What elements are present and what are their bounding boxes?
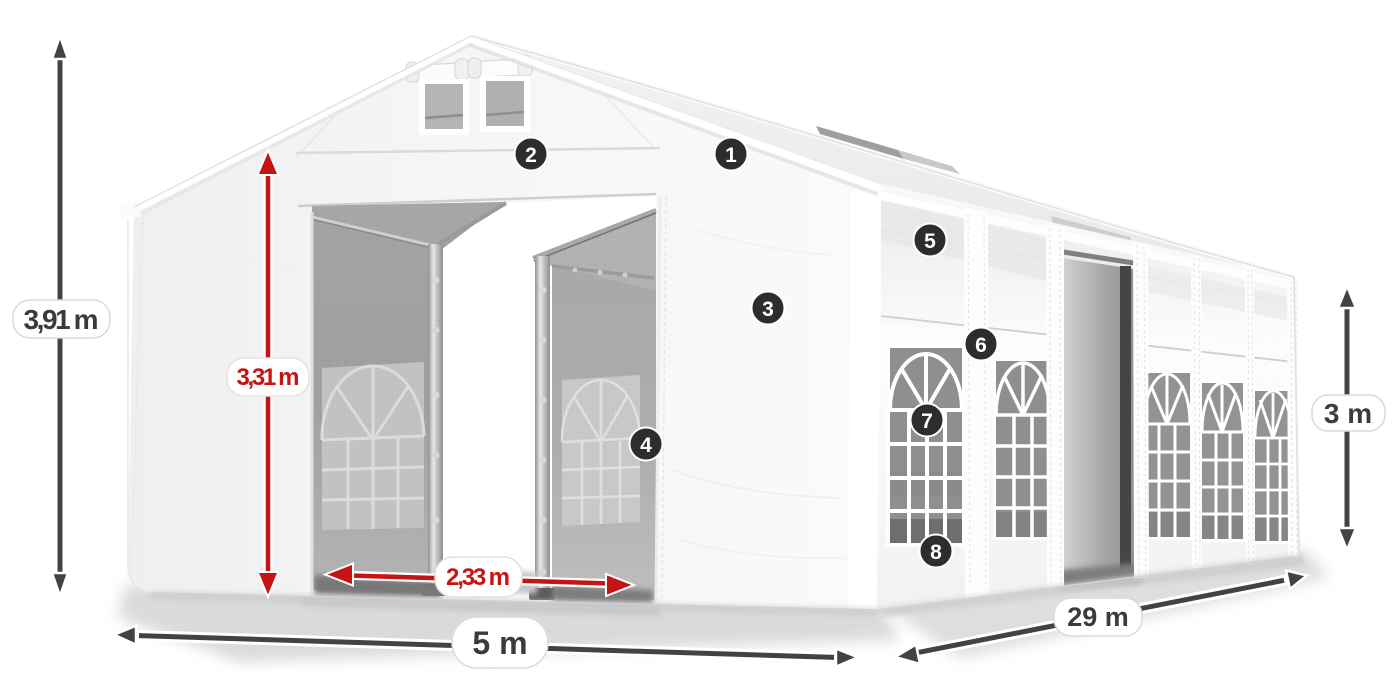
svg-text:29 m: 29 m bbox=[1067, 602, 1129, 632]
svg-text:2: 2 bbox=[525, 144, 537, 167]
svg-text:8: 8 bbox=[930, 541, 942, 564]
svg-text:5: 5 bbox=[924, 230, 936, 253]
svg-text:5 m: 5 m bbox=[472, 625, 527, 661]
svg-text:3,91 m: 3,91 m bbox=[24, 304, 99, 335]
svg-text:1: 1 bbox=[725, 144, 737, 167]
svg-text:2,33 m: 2,33 m bbox=[446, 564, 510, 591]
svg-text:6: 6 bbox=[975, 334, 987, 357]
svg-text:3,31 m: 3,31 m bbox=[237, 364, 300, 391]
svg-text:7: 7 bbox=[921, 410, 933, 433]
svg-text:3 m: 3 m bbox=[1324, 398, 1372, 429]
svg-text:3: 3 bbox=[762, 298, 774, 321]
svg-text:4: 4 bbox=[640, 434, 652, 457]
